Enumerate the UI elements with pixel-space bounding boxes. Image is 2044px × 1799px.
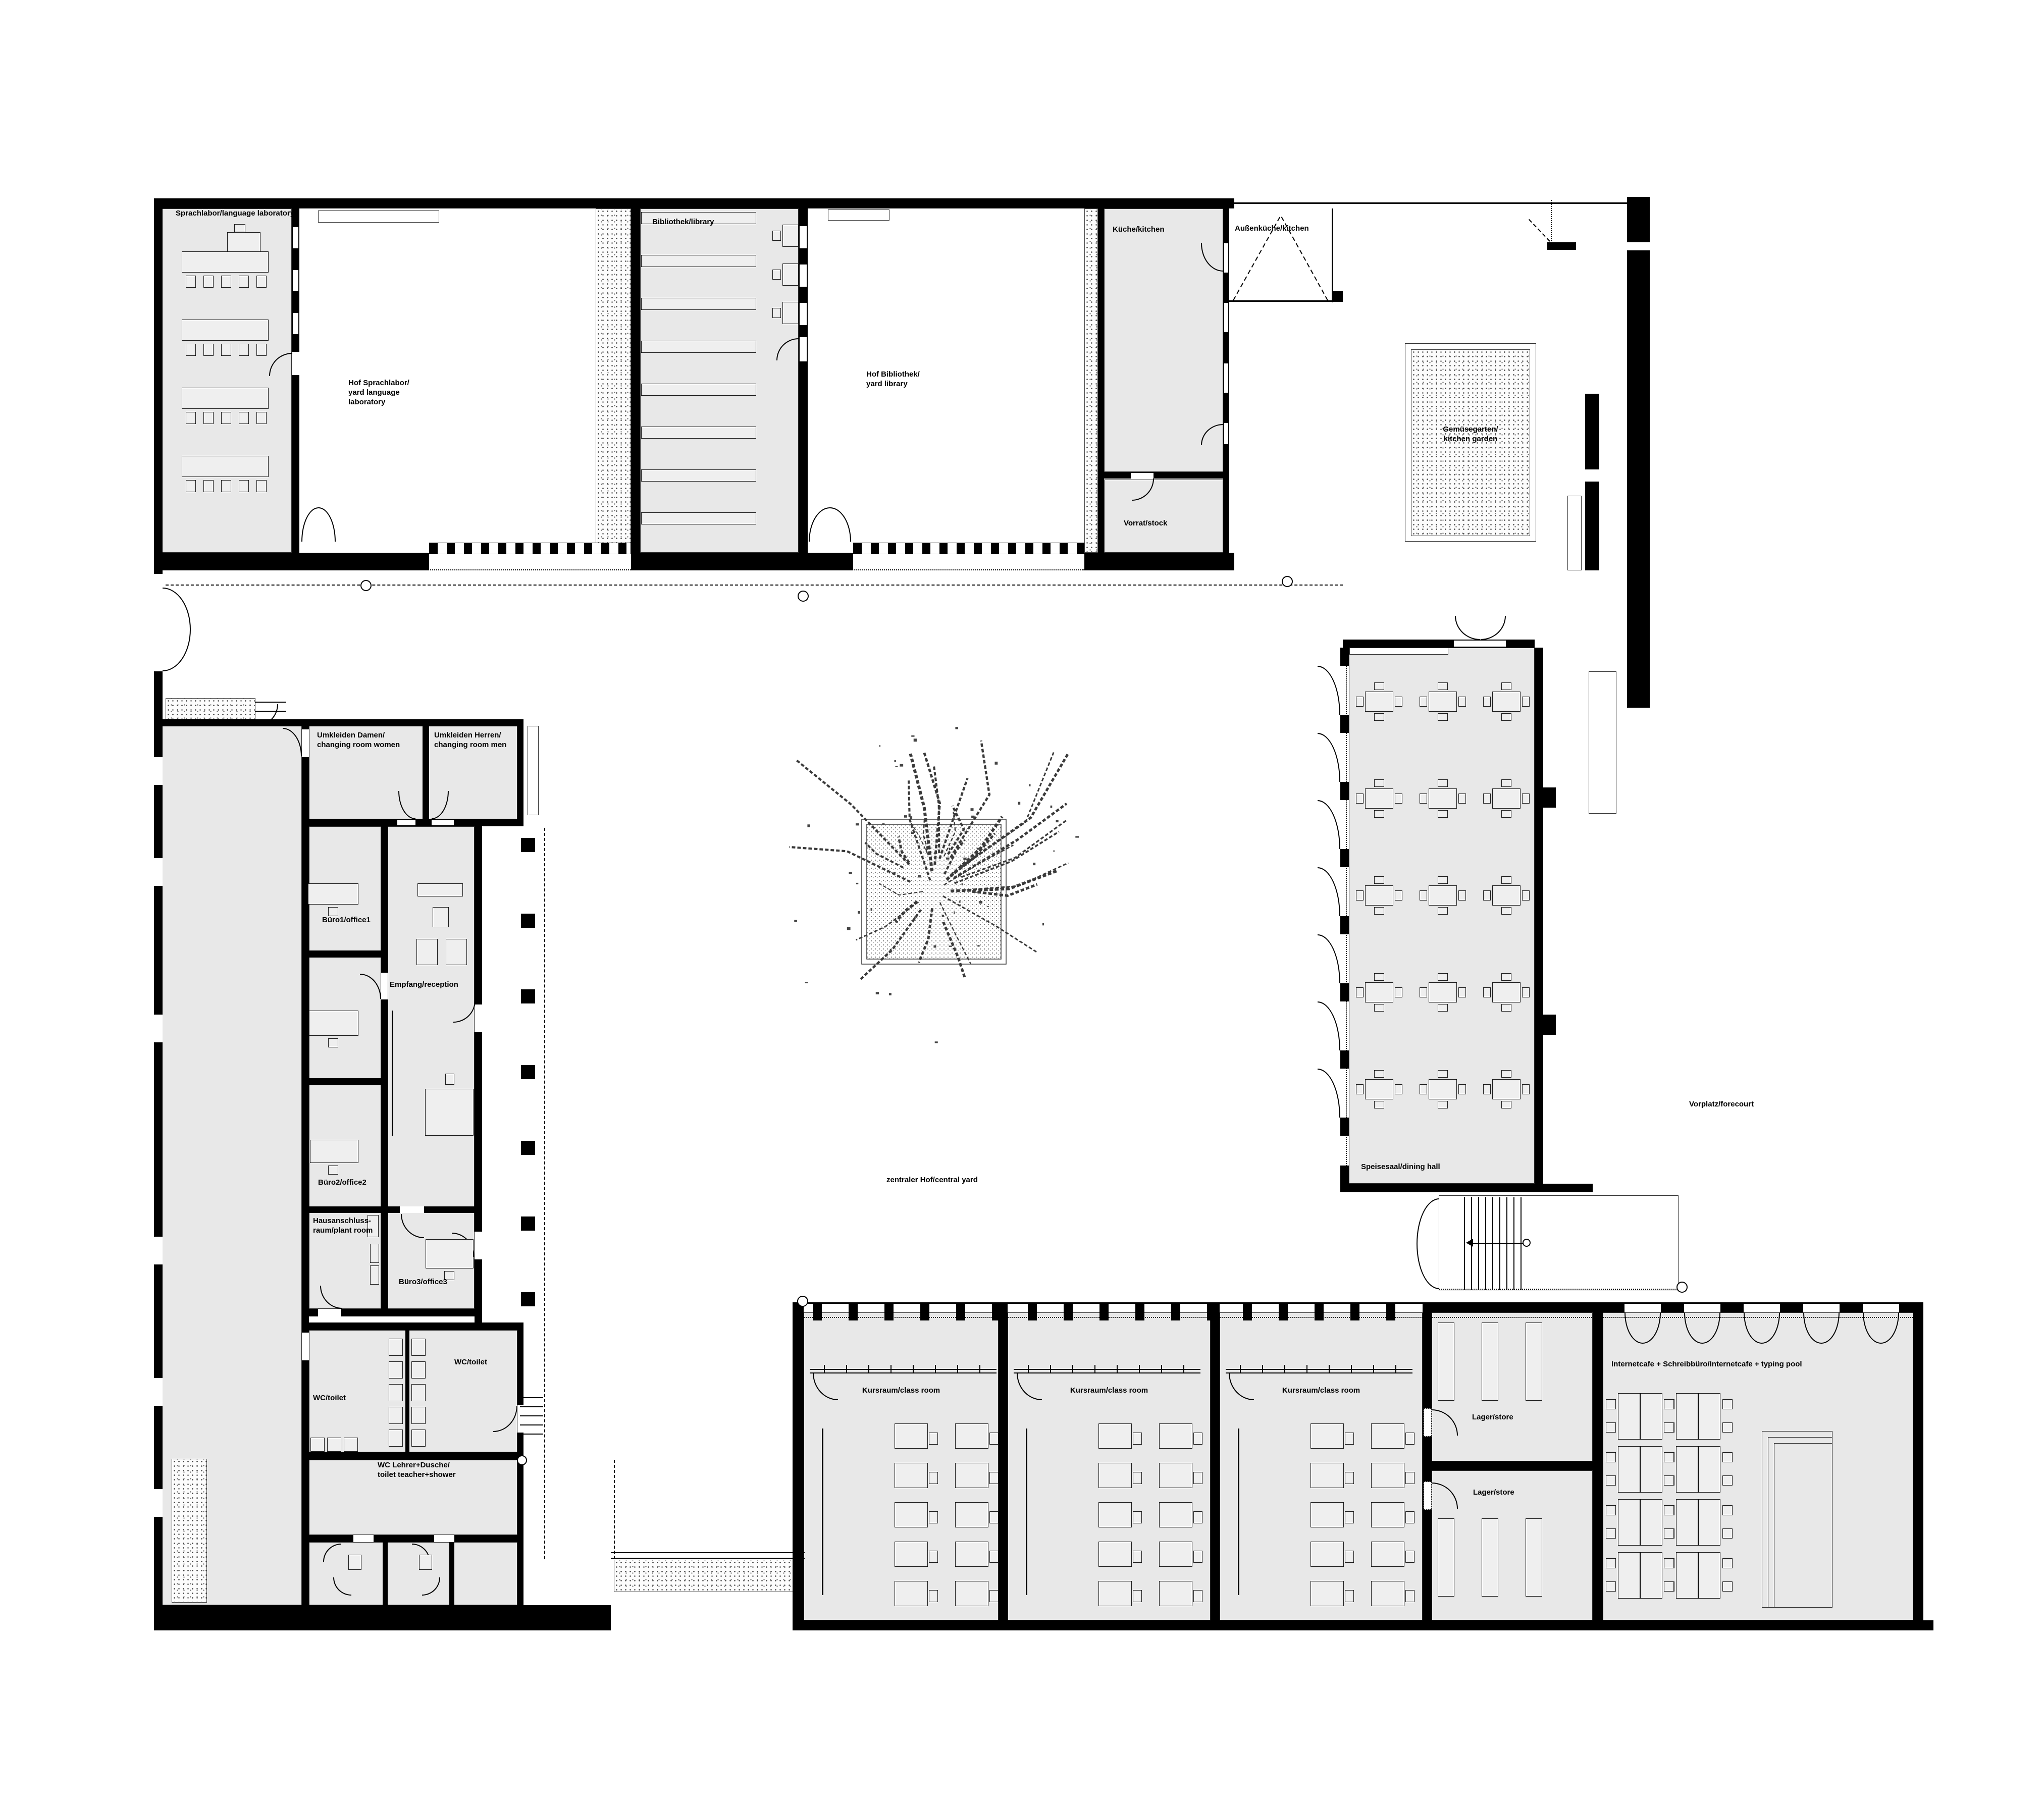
wall-opening bbox=[292, 352, 299, 375]
bookshelf bbox=[641, 427, 756, 439]
detail-line bbox=[804, 1302, 1423, 1304]
courtyard-column bbox=[521, 838, 535, 852]
paved-area bbox=[166, 698, 255, 719]
coat-hook bbox=[1306, 1365, 1307, 1373]
wall-segment bbox=[309, 819, 523, 826]
chair bbox=[1133, 1551, 1142, 1563]
canopy-line bbox=[808, 569, 1084, 570]
chair bbox=[1395, 1084, 1402, 1094]
desk-divider bbox=[1698, 1499, 1699, 1546]
chair bbox=[186, 480, 196, 492]
chair bbox=[186, 276, 196, 288]
tree-foliage-dot bbox=[933, 945, 936, 948]
stair-tread bbox=[520, 1406, 543, 1407]
door-arc bbox=[809, 507, 830, 542]
chair bbox=[1420, 890, 1427, 901]
wall-segment bbox=[793, 1302, 804, 1630]
chair bbox=[186, 344, 196, 356]
dining-table bbox=[1492, 1079, 1521, 1099]
tree-branch bbox=[957, 863, 1068, 890]
courtyard-column bbox=[521, 914, 535, 928]
stair-arrow bbox=[1466, 1239, 1473, 1247]
stair-tread bbox=[520, 1424, 543, 1425]
coat-hook bbox=[1284, 1365, 1285, 1373]
chair bbox=[989, 1590, 999, 1602]
desk bbox=[895, 1502, 928, 1527]
door-arc bbox=[1318, 1001, 1340, 1050]
chair bbox=[1606, 1399, 1616, 1409]
fixture bbox=[1567, 496, 1582, 570]
colonnade-pier bbox=[1340, 983, 1349, 1001]
toilet bbox=[389, 1384, 403, 1401]
chair bbox=[1374, 876, 1384, 884]
wall-segment bbox=[1104, 472, 1229, 479]
desk-divider bbox=[1640, 1552, 1641, 1599]
chair bbox=[221, 412, 231, 424]
toilet bbox=[348, 1555, 361, 1570]
wall-segment bbox=[1343, 640, 1535, 648]
coat-rail bbox=[1014, 1369, 1200, 1370]
chair bbox=[186, 412, 196, 424]
bench bbox=[310, 1438, 325, 1452]
chair bbox=[1722, 1399, 1733, 1409]
wall-opening bbox=[434, 1535, 454, 1542]
tree-branch bbox=[972, 884, 1037, 895]
wall-opening bbox=[293, 270, 298, 291]
tree-foliage-dot bbox=[962, 883, 963, 885]
chair bbox=[1501, 810, 1511, 818]
chair bbox=[1664, 1528, 1674, 1539]
detail-line bbox=[255, 702, 286, 703]
chair bbox=[1483, 987, 1491, 997]
tree-foliage-dot bbox=[858, 911, 860, 914]
wall-segment bbox=[154, 198, 1234, 208]
tree-branch bbox=[879, 883, 923, 895]
wall-opening bbox=[353, 1535, 374, 1542]
coat-hook bbox=[1072, 1365, 1073, 1373]
desk bbox=[1371, 1581, 1404, 1606]
tree-foliage-dot bbox=[849, 872, 852, 874]
tree-foliage-dot bbox=[896, 921, 898, 923]
paved-area bbox=[614, 1560, 804, 1592]
coat-hook bbox=[1050, 1365, 1051, 1373]
chair bbox=[989, 1551, 999, 1563]
chair bbox=[1193, 1433, 1202, 1445]
coat-hook bbox=[979, 1365, 980, 1373]
tree-foliage-dot bbox=[1029, 784, 1030, 786]
chair bbox=[1420, 697, 1427, 707]
bookshelf bbox=[641, 384, 756, 396]
chair bbox=[1405, 1590, 1414, 1602]
stair-tread bbox=[520, 1415, 543, 1416]
label-lager-1: Lager/store bbox=[1472, 1413, 1513, 1422]
tree-foliage-dot bbox=[856, 823, 859, 825]
wall-segment bbox=[309, 950, 381, 958]
tree-foliage-dot bbox=[882, 823, 885, 825]
coat-hook bbox=[1183, 1365, 1184, 1373]
canopy-line bbox=[1551, 200, 1552, 243]
wall-opening bbox=[517, 1405, 523, 1433]
storage-rack bbox=[1438, 1518, 1454, 1597]
chair bbox=[1483, 1084, 1491, 1094]
wall-segment bbox=[302, 1452, 523, 1460]
toilet bbox=[389, 1361, 403, 1379]
desk-divider bbox=[1640, 1393, 1641, 1440]
tree-foliage-dot bbox=[956, 839, 959, 840]
coat-hook bbox=[868, 1365, 869, 1373]
tree-foliage-dot bbox=[794, 920, 797, 922]
door-arc bbox=[1455, 616, 1480, 640]
tree-foliage-dot bbox=[1056, 820, 1059, 822]
grate-strip bbox=[853, 543, 1084, 554]
dining-table bbox=[1365, 982, 1393, 1002]
desk bbox=[782, 263, 799, 286]
tree-branch bbox=[961, 821, 1066, 877]
room-floor bbox=[1432, 1312, 1593, 1461]
detail-line bbox=[1234, 202, 1627, 204]
desk bbox=[1371, 1502, 1404, 1527]
courtyard-tree bbox=[757, 681, 1111, 1065]
chair bbox=[1374, 1070, 1384, 1078]
chair bbox=[221, 344, 231, 356]
detail-line bbox=[392, 1011, 393, 1136]
door-arc bbox=[163, 588, 191, 629]
toilet bbox=[389, 1407, 403, 1424]
tree-branch bbox=[796, 760, 909, 865]
desk bbox=[1159, 1502, 1192, 1527]
label-umkleiden-damen: Umkleiden Damen/ changing room women bbox=[317, 731, 400, 750]
dining-table bbox=[1492, 982, 1521, 1002]
wall-segment bbox=[1432, 1461, 1593, 1470]
column-marker bbox=[517, 1455, 527, 1465]
chair bbox=[1664, 1558, 1674, 1568]
label-wc-lehrer: WC Lehrer+Dusche/ toilet teacher+shower bbox=[378, 1461, 456, 1480]
floor-plan: Sprachlabor/language laboratory Hof Spra… bbox=[0, 0, 2044, 1799]
wall-opening bbox=[1131, 473, 1154, 479]
desk bbox=[782, 302, 799, 324]
equipment bbox=[370, 1244, 379, 1263]
label-buero3: Büro3/office3 bbox=[399, 1278, 447, 1287]
stair-tread bbox=[1464, 1197, 1465, 1290]
stair-tread bbox=[1478, 1197, 1479, 1290]
toilet bbox=[411, 1361, 426, 1379]
tree-branch bbox=[924, 752, 939, 865]
label-zentraler-hof: zentraler Hof/central yard bbox=[886, 1176, 978, 1185]
stair-tread bbox=[1506, 1197, 1507, 1290]
chair bbox=[1193, 1590, 1202, 1602]
desk bbox=[782, 225, 799, 247]
detail-line bbox=[1229, 300, 1333, 302]
toilet bbox=[389, 1430, 403, 1447]
wall-opening bbox=[800, 303, 807, 325]
colonnade-pier bbox=[1340, 1118, 1349, 1136]
colonnade-pier bbox=[1340, 916, 1349, 934]
chair bbox=[234, 224, 245, 232]
wall-opening bbox=[154, 1237, 163, 1264]
wall-opening bbox=[154, 858, 163, 886]
tree-foliage-dot bbox=[1042, 923, 1044, 925]
lab-table bbox=[182, 388, 269, 409]
chair bbox=[1606, 1581, 1616, 1592]
wall-opening bbox=[381, 973, 388, 999]
stair-tread bbox=[520, 1434, 543, 1435]
chair bbox=[1458, 890, 1466, 901]
tree-branch bbox=[951, 740, 989, 858]
tree-foliage-dot bbox=[910, 816, 912, 819]
desk bbox=[955, 1581, 988, 1606]
desk bbox=[1159, 1423, 1192, 1449]
chair bbox=[1606, 1558, 1616, 1568]
coat-hook bbox=[1373, 1365, 1374, 1373]
coat-hook bbox=[1240, 1365, 1241, 1373]
chair bbox=[1501, 779, 1511, 787]
door-arc bbox=[319, 507, 336, 542]
chair bbox=[1374, 682, 1384, 690]
tree-branch bbox=[934, 767, 939, 853]
wall-segment bbox=[631, 553, 853, 570]
lab-table bbox=[182, 456, 269, 477]
wall-segment bbox=[799, 208, 808, 553]
tree-foliage-dot bbox=[911, 735, 914, 737]
tree-branch bbox=[944, 812, 955, 856]
chair bbox=[1193, 1472, 1202, 1484]
chair bbox=[1374, 779, 1384, 787]
wall-opening bbox=[800, 337, 807, 361]
door-arc bbox=[1318, 934, 1340, 983]
wall-segment bbox=[154, 553, 429, 570]
tree-foliage-dot bbox=[911, 832, 914, 834]
chair bbox=[1438, 810, 1448, 818]
colonnade-pier bbox=[1340, 648, 1349, 666]
wall-segment bbox=[154, 671, 163, 1630]
tree-foliage-dot bbox=[987, 906, 989, 907]
tree-foliage-dot bbox=[1075, 836, 1079, 837]
bookshelf bbox=[641, 298, 756, 310]
chair bbox=[1420, 987, 1427, 997]
chair bbox=[989, 1433, 999, 1445]
wall-segment bbox=[309, 1206, 381, 1213]
door-arc bbox=[1318, 733, 1340, 782]
wall-opening bbox=[1863, 1304, 1899, 1312]
chair bbox=[929, 1472, 938, 1484]
detail-line bbox=[822, 1428, 823, 1595]
chair bbox=[1722, 1422, 1733, 1433]
chair bbox=[1501, 1004, 1511, 1012]
armchair bbox=[416, 939, 438, 965]
chair bbox=[1420, 1084, 1427, 1094]
desk-divider bbox=[1640, 1499, 1641, 1546]
stair-tread bbox=[1485, 1197, 1486, 1290]
door-arc bbox=[1318, 1069, 1340, 1118]
chair bbox=[1722, 1505, 1733, 1515]
tree-foliage-dot bbox=[977, 945, 979, 946]
wall-segment bbox=[1332, 291, 1343, 302]
grate-strip bbox=[429, 543, 631, 554]
chair bbox=[1356, 793, 1364, 804]
wall-opening bbox=[1585, 469, 1599, 482]
label-umkleiden-herren: Umkleiden Herren/ changing room men bbox=[434, 731, 506, 750]
wall-opening bbox=[1624, 1304, 1661, 1312]
tree-foliage-dot bbox=[963, 858, 966, 860]
chair bbox=[989, 1472, 999, 1484]
detail-line bbox=[1547, 242, 1576, 250]
wall-segment bbox=[1098, 208, 1104, 553]
wall-segment bbox=[1084, 553, 1234, 570]
tree-branch bbox=[856, 902, 919, 940]
chair bbox=[1345, 1590, 1354, 1602]
wall-segment bbox=[309, 1078, 381, 1085]
walkway-line bbox=[614, 1460, 615, 1559]
chair bbox=[1345, 1472, 1354, 1484]
chair bbox=[1395, 697, 1402, 707]
toilet bbox=[389, 1339, 403, 1356]
tree-foliage-dot bbox=[900, 764, 903, 766]
chair bbox=[1420, 793, 1427, 804]
dining-table bbox=[1429, 982, 1457, 1002]
chair bbox=[256, 412, 267, 424]
chair bbox=[1501, 876, 1511, 884]
desk bbox=[308, 883, 358, 905]
tree-branch bbox=[923, 818, 929, 855]
wall-segment bbox=[154, 198, 163, 574]
wall-segment bbox=[292, 208, 299, 553]
chair bbox=[256, 480, 267, 492]
wall-opening bbox=[1627, 242, 1650, 250]
wall-opening bbox=[154, 757, 163, 785]
chair bbox=[1438, 1070, 1448, 1078]
chair bbox=[1345, 1433, 1354, 1445]
tree-foliage-dot bbox=[904, 815, 907, 818]
tree-foliage-dot bbox=[934, 852, 936, 855]
tree-foliage-dot bbox=[949, 945, 952, 946]
chair bbox=[1193, 1551, 1202, 1563]
chair bbox=[328, 1038, 338, 1047]
courtyard-column bbox=[521, 1216, 535, 1231]
coat-rail bbox=[1226, 1369, 1412, 1370]
desk bbox=[1371, 1463, 1404, 1488]
chair bbox=[203, 344, 214, 356]
chair bbox=[1345, 1551, 1354, 1563]
courtyard-column bbox=[521, 1141, 535, 1155]
chair bbox=[1606, 1452, 1616, 1462]
desk bbox=[1311, 1463, 1344, 1488]
tree-foliage-dot bbox=[847, 927, 851, 930]
tree-foliage-dot bbox=[949, 848, 950, 851]
wall-segment bbox=[1340, 1184, 1593, 1192]
chair bbox=[1133, 1511, 1142, 1523]
chair bbox=[1374, 1004, 1384, 1012]
wall-opening bbox=[318, 1309, 341, 1316]
bench bbox=[327, 1438, 341, 1452]
canopy-line bbox=[166, 585, 1343, 586]
coat-hook bbox=[1139, 1365, 1140, 1373]
tree-foliage-dot bbox=[918, 875, 921, 877]
desk bbox=[895, 1463, 928, 1488]
wall-opening bbox=[1454, 641, 1506, 647]
tree-foliage-dot bbox=[805, 982, 808, 983]
tree-branch bbox=[943, 896, 1036, 952]
chair bbox=[929, 1551, 938, 1563]
toilet bbox=[411, 1339, 426, 1356]
wall-segment bbox=[381, 826, 388, 1316]
label-kursraum-1: Kursraum/class room bbox=[804, 1386, 999, 1396]
label-buero2: Büro2/office2 bbox=[318, 1178, 366, 1188]
detail-line bbox=[611, 1552, 805, 1553]
chair bbox=[1664, 1422, 1674, 1433]
reception-desk bbox=[425, 1089, 474, 1136]
label-vorrat: Vorrat/stock bbox=[1124, 519, 1167, 528]
door-arc bbox=[1417, 1244, 1439, 1289]
tree-foliage-dot bbox=[926, 849, 927, 852]
stair-tread bbox=[1513, 1197, 1514, 1290]
column-marker bbox=[360, 580, 372, 591]
wall-segment bbox=[517, 1322, 523, 1460]
detail-line bbox=[1238, 1428, 1239, 1595]
tree-foliage-dot bbox=[894, 872, 895, 873]
chair bbox=[1722, 1475, 1733, 1486]
wall-opening bbox=[1684, 1304, 1720, 1312]
chair bbox=[239, 480, 249, 492]
coat-hook bbox=[1117, 1365, 1118, 1373]
chair bbox=[1374, 907, 1384, 915]
chair bbox=[1664, 1505, 1674, 1515]
chair bbox=[772, 231, 781, 241]
wall-segment bbox=[302, 725, 309, 1605]
label-sprachlabor: Sprachlabor/language laboratory bbox=[176, 209, 294, 219]
wall-opening bbox=[800, 264, 807, 287]
wall-opening bbox=[154, 1378, 163, 1406]
toilet bbox=[419, 1555, 432, 1570]
column-marker bbox=[1282, 576, 1293, 587]
tree-branch bbox=[865, 842, 904, 868]
storage-rack bbox=[1438, 1322, 1454, 1401]
chair bbox=[1606, 1528, 1616, 1539]
chair bbox=[1458, 793, 1466, 804]
tree-branch bbox=[948, 806, 964, 854]
dining-table bbox=[1492, 692, 1521, 712]
label-wc-rechts: WC/toilet bbox=[454, 1358, 487, 1367]
tree-foliage-dot bbox=[1051, 806, 1053, 808]
chair bbox=[1438, 907, 1448, 915]
desk bbox=[227, 232, 260, 252]
chair bbox=[1664, 1475, 1674, 1486]
tree-foliage-dot bbox=[971, 808, 974, 811]
chair bbox=[1438, 973, 1448, 981]
chair bbox=[221, 276, 231, 288]
tree-branch bbox=[896, 902, 917, 922]
tree-foliage-dot bbox=[894, 760, 896, 762]
tree-foliage-dot bbox=[856, 883, 858, 884]
tree-foliage-dot bbox=[807, 824, 810, 827]
canopy-line bbox=[1439, 1289, 1679, 1290]
wall-segment bbox=[405, 1330, 409, 1452]
door-arc bbox=[163, 629, 191, 671]
coat-hook bbox=[1028, 1365, 1029, 1373]
coat-hook bbox=[957, 1365, 958, 1373]
chair bbox=[1356, 697, 1364, 707]
column-marker bbox=[797, 1296, 808, 1307]
tree-branch bbox=[899, 836, 909, 863]
colonnade-pier bbox=[1340, 715, 1349, 733]
wall-segment bbox=[1432, 1302, 1593, 1312]
tree-branch bbox=[950, 833, 994, 876]
tree-foliage-dot bbox=[946, 858, 950, 860]
bookshelf bbox=[641, 341, 756, 353]
wall-segment bbox=[999, 1302, 1008, 1620]
dining-table bbox=[1429, 1079, 1457, 1099]
tree-branch bbox=[909, 780, 930, 880]
chair bbox=[1522, 1084, 1530, 1094]
